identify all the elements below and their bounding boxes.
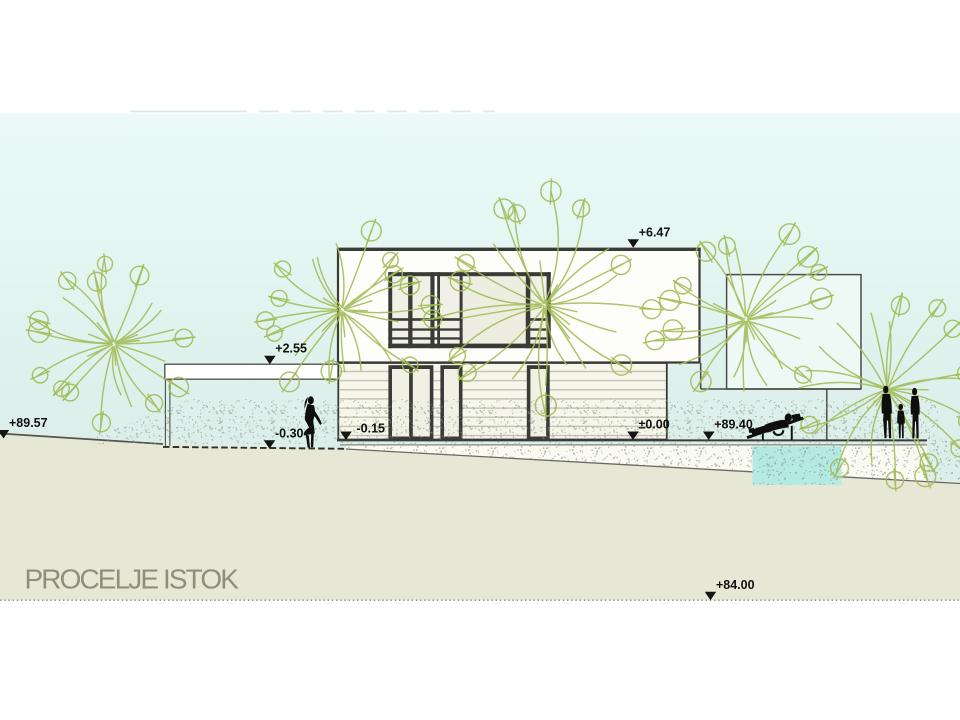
svg-text:±0.00: ±0.00 <box>639 418 670 432</box>
svg-text:-0.15: -0.15 <box>357 422 386 436</box>
svg-text:PROCELJE ISTOK: PROCELJE ISTOK <box>25 564 240 595</box>
svg-text:+89.57: +89.57 <box>9 416 48 430</box>
svg-text:+2.55: +2.55 <box>275 342 307 356</box>
svg-text:-0.30: -0.30 <box>275 426 304 440</box>
svg-text:+6.47: +6.47 <box>639 225 671 239</box>
svg-text:+89.40: +89.40 <box>714 418 753 432</box>
svg-text:+84.00: +84.00 <box>716 578 755 592</box>
